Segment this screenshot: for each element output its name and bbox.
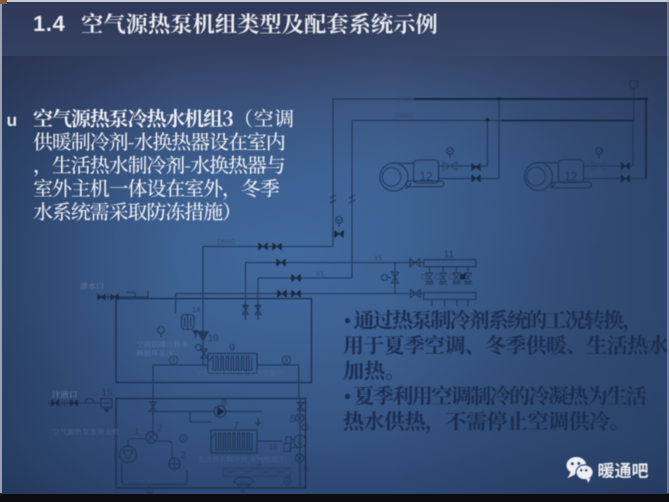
svg-text:13: 13 — [269, 444, 277, 451]
svg-text:15: 15 — [101, 388, 113, 399]
svg-text:11: 11 — [444, 250, 455, 261]
svg-text:V1: V1 — [374, 255, 382, 262]
svg-text:V1: V1 — [316, 271, 324, 278]
svg-text:2: 2 — [180, 450, 185, 460]
svg-text:5: 5 — [303, 464, 308, 475]
svg-text:DN40: DN40 — [217, 239, 235, 246]
svg-text:5: 5 — [290, 414, 295, 425]
svg-text:12: 12 — [420, 172, 433, 184]
svg-text:3: 3 — [182, 436, 186, 443]
svg-text:1: 1 — [135, 427, 140, 436]
svg-text:3: 3 — [303, 425, 307, 432]
svg-text:DN50: DN50 — [396, 96, 414, 103]
svg-text:4: 4 — [285, 358, 289, 365]
svg-text:14: 14 — [192, 305, 200, 314]
svg-text:7: 7 — [172, 358, 176, 365]
svg-text:10: 10 — [208, 333, 219, 344]
svg-text:2: 2 — [157, 423, 162, 433]
svg-text:9: 9 — [229, 343, 235, 354]
svg-text:DN50: DN50 — [395, 113, 413, 120]
svg-text:6: 6 — [297, 437, 302, 448]
svg-text:4: 4 — [286, 479, 290, 486]
